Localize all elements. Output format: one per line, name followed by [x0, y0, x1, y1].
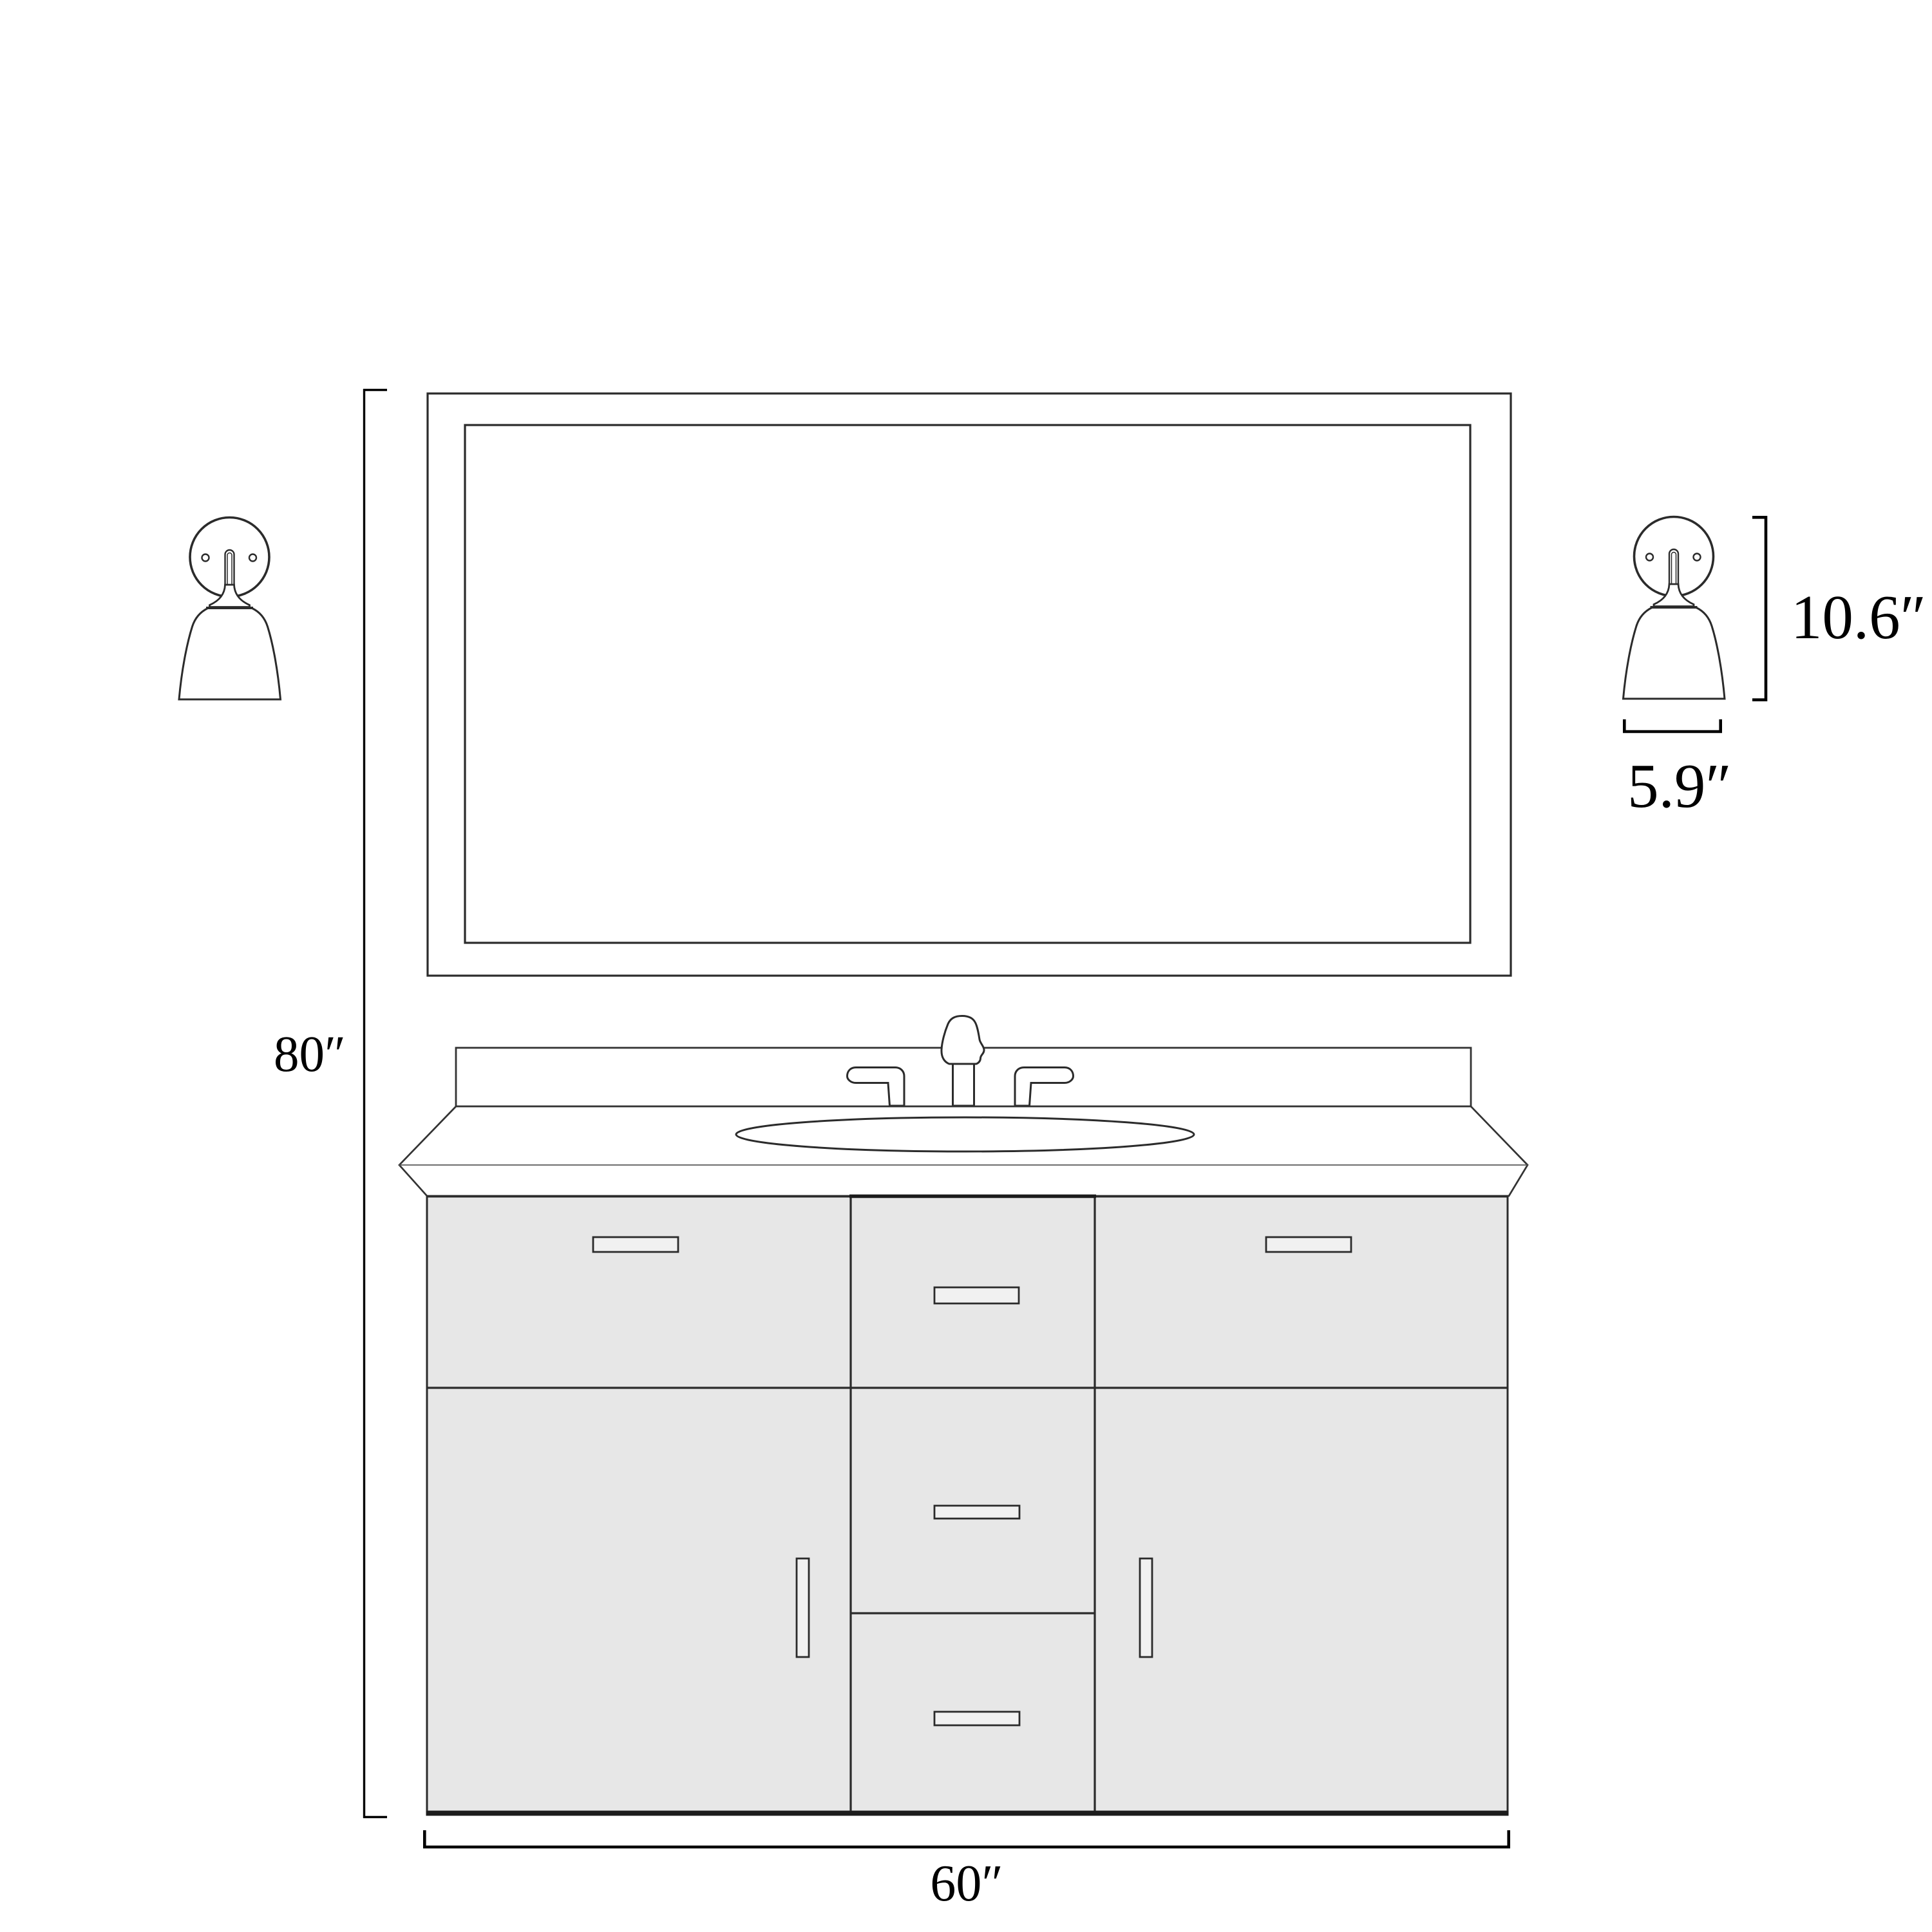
svg-text:5.9″: 5.9″: [1627, 752, 1732, 820]
svg-text:10.6″: 10.6″: [1791, 583, 1926, 652]
svg-text:80″: 80″: [274, 1027, 346, 1083]
svg-text:60″: 60″: [930, 1855, 1003, 1912]
